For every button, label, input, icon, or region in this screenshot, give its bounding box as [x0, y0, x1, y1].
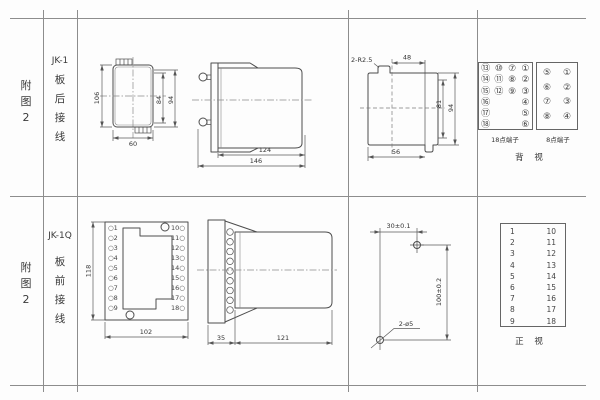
svg-text:84: 84: [155, 96, 163, 104]
dim-35: 35: [208, 310, 235, 345]
svg-text:48: 48: [403, 54, 411, 62]
dim-84: 84: [154, 73, 166, 123]
jk1q-front-view: 118 102: [85, 215, 207, 347]
model-label-jk1q: JK-1Q: [42, 231, 78, 241]
terminal-block-8pt: ⑤ ⑥ ⑦ ⑧ ① ② ③ ④: [536, 62, 578, 130]
svg-text:81: 81: [435, 100, 443, 108]
t8-col1: ⑤ ⑥ ⑦ ⑧: [537, 63, 557, 129]
dim-118: 118: [85, 222, 106, 320]
front-view-label: 正 视: [477, 335, 585, 347]
grid-line-v1: [43, 10, 44, 392]
svg-text:94: 94: [167, 96, 175, 104]
t18-col1: ⑬ ⑭ ⑮ ⑯ ⑰ ⑱: [479, 63, 492, 129]
cutout-outline: [360, 59, 445, 156]
t18-col2: ⑩ ⑪ ⑫: [492, 63, 505, 129]
fig-label-top: 附 图 2: [15, 78, 37, 126]
jk1q-side-outline: [197, 220, 337, 323]
jk1-side-view: 124 146: [190, 45, 316, 177]
svg-text:60: 60: [129, 140, 137, 148]
svg-text:124: 124: [259, 146, 271, 154]
model-label-jk1: JK-1: [42, 56, 78, 66]
rear-view-label: 背 视: [477, 151, 585, 163]
label-18pt: 18点端子: [476, 134, 534, 144]
dim-100: 100±0.2: [384, 245, 451, 340]
jk1q-side-view: 35 121: [195, 212, 341, 354]
jk1q-right-terminals: 10○ 11○ 12○ 13○ 14○ 15○ 16○ 17○ 18○: [171, 223, 185, 313]
t18-col4: ① ② ③ ④ ⑤ ⑥: [519, 63, 532, 129]
svg-text:118: 118: [85, 265, 93, 277]
figure-sheet: 附 图 2 JK-1 板 后 接 线 附 图 2 JK-1Q 板 前 接 线 1…: [0, 0, 600, 400]
wiring-label-front: 板 前 接 线: [48, 253, 72, 329]
terminal-number-table: 1 2 3 4 5 6 7 8 9 10 11 12 13 14 15 16 1…: [500, 223, 566, 327]
svg-text:56: 56: [392, 148, 400, 156]
grid-line-bottom: [10, 385, 586, 386]
drill-holes: [377, 228, 425, 350]
jk1-side-outline: [192, 63, 312, 152]
svg-text:146: 146: [250, 157, 262, 165]
grid-line-v3: [348, 10, 349, 392]
dim-102: 102: [105, 322, 188, 339]
svg-text:121: 121: [277, 334, 289, 342]
drill-template: 30±0.1 100±0.2 2-ø5: [350, 215, 470, 373]
radius-note: 2-R2.5: [351, 56, 379, 68]
table-col-left: 1 2 3 4 5 6 7 8 9: [510, 226, 515, 326]
jk1q-left-terminals: ○1 ○2 ○3 ○4 ○5 ○6 ○7 ○8 ○9: [108, 223, 118, 313]
grid-line-v2: [77, 10, 78, 392]
dim-56: 56: [368, 147, 425, 161]
dim-30: 30±0.1: [370, 222, 427, 234]
svg-text:30±0.1: 30±0.1: [386, 222, 410, 230]
svg-text:2-R2.5: 2-R2.5: [351, 56, 372, 64]
grid-line-top: [10, 18, 586, 19]
t8-col2: ① ② ③ ④: [557, 63, 577, 129]
dim-81: 81: [435, 80, 447, 138]
jk1q-screw-row: [227, 229, 234, 314]
svg-text:102: 102: [140, 328, 152, 336]
table-col-right: 10 11 12 13 14 15 16 17 18: [546, 226, 556, 326]
hole-note: 2-ø5: [371, 320, 420, 348]
dim-48: 48: [392, 54, 425, 64]
svg-text:100±0.2: 100±0.2: [435, 278, 443, 306]
t18-col3: ⑦ ⑧ ⑨: [506, 63, 519, 129]
label-8pt: 8点端子: [536, 134, 580, 144]
jk1-front-view: 106 84 94 60: [88, 45, 194, 171]
terminal-block-18pt: ⑬ ⑭ ⑮ ⑯ ⑰ ⑱ ⑩ ⑪ ⑫ ⑦ ⑧ ⑨ ① ② ③ ④ ⑤ ⑥: [478, 62, 533, 130]
grid-line-middle: [10, 196, 586, 197]
jk1-panel-cutout: 2-R2.5 48 81 94 56: [350, 48, 466, 170]
dim-121: 121: [235, 310, 332, 345]
wiring-label-rear: 板 后 接 线: [48, 71, 72, 147]
fig-label-bottom: 附 图 2: [15, 260, 37, 308]
svg-text:94: 94: [447, 104, 455, 112]
svg-text:2-ø5: 2-ø5: [399, 320, 414, 328]
svg-text:35: 35: [217, 334, 225, 342]
svg-text:106: 106: [93, 92, 101, 104]
